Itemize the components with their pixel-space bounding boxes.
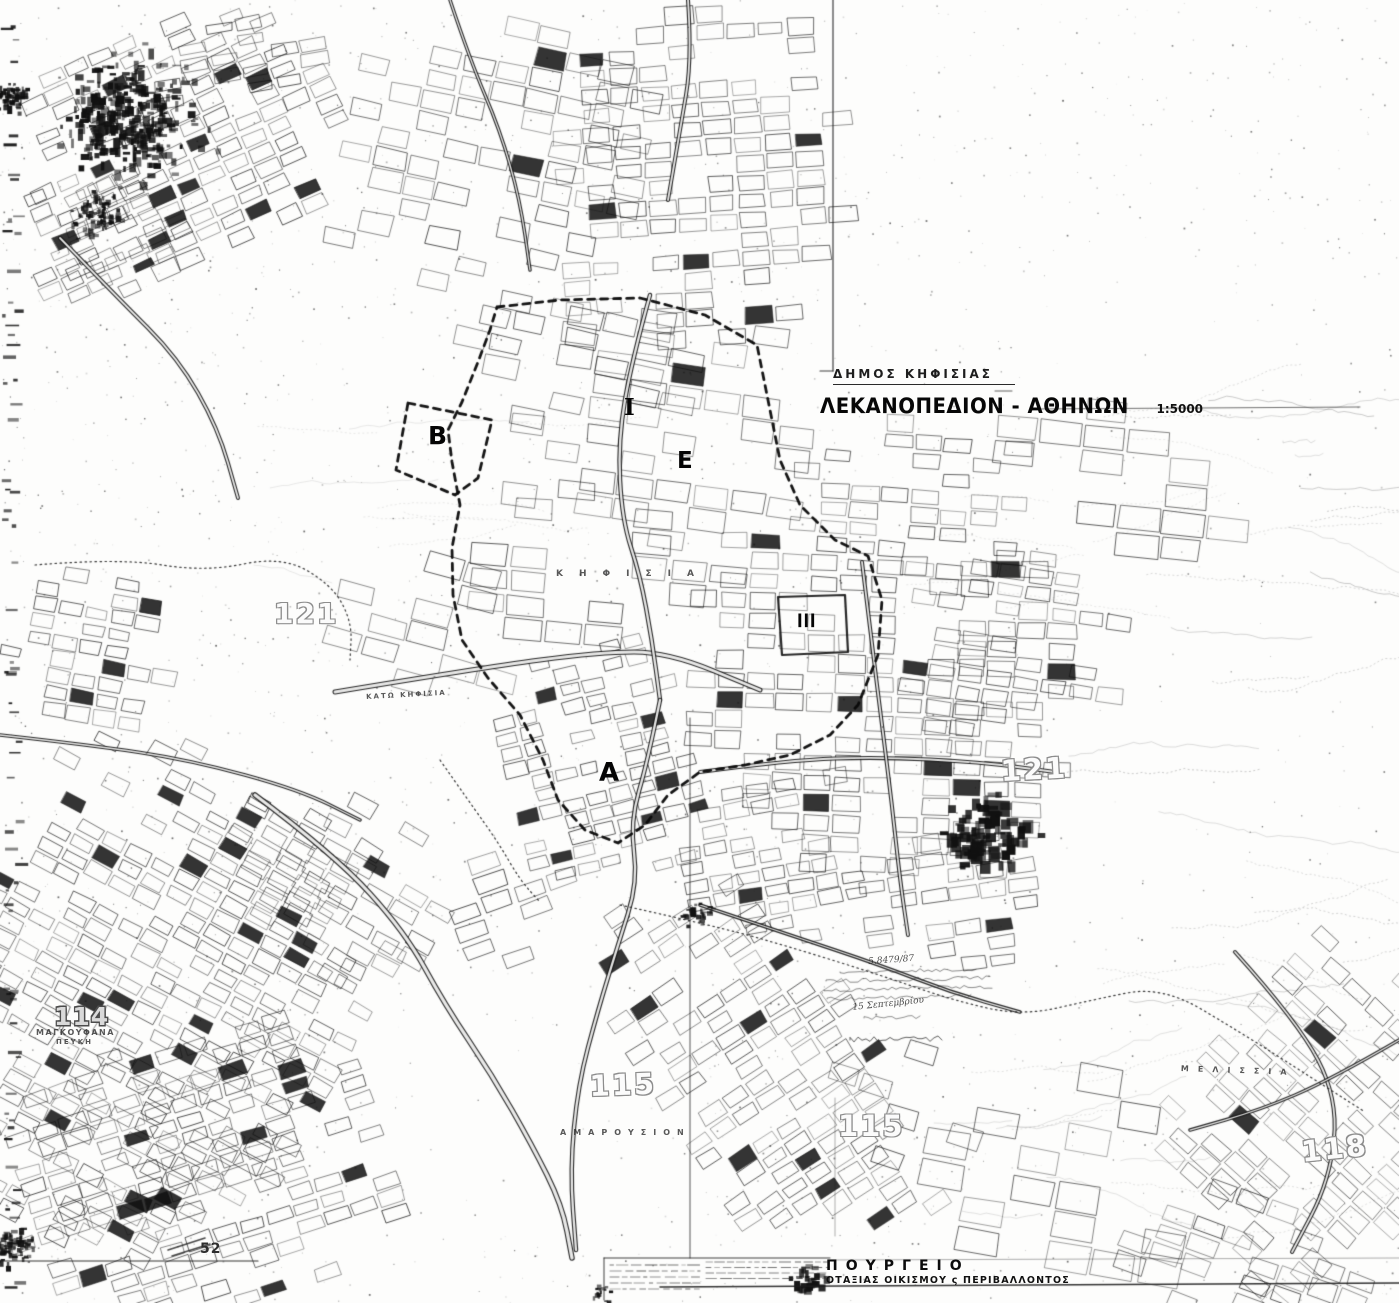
- sheet-number-118: 118: [1300, 1131, 1369, 1167]
- ministry-department-label: ΟΤΑΞΙΑΣ ΟΙΚΙΣΜΟΥ ς ΠΕΡΙΒΑΛΛΟΝΤΟΣ: [826, 1275, 1070, 1286]
- map-title-block: ΔΗΜΟΣ ΚΗΦΙΣΙΑΣ ΛΕΚΑΝΟΠΕΔΙΟΝ - ΑΘΗΝΩΝ 1:5…: [820, 363, 1380, 418]
- annotation-date: 15 Σεπτεμβρίου: [852, 996, 925, 1012]
- ministry-name-label: ΠΟΥΡΓΕΙΟ: [826, 1258, 1070, 1274]
- place-name-pefki: ΠΕΥΚΗ: [56, 1039, 93, 1046]
- map-title: ΛΕΚΑΝΟΠΕΔΙΟΝ - ΑΘΗΝΩΝ: [820, 394, 1129, 418]
- map-labels-layer: 12112111511511811452ΒΕΑΙΙΙΙΚΗΦΙΣΙΑΚΑΤΩ Κ…: [0, 0, 1399, 1303]
- place-name-magkoufana: ΜΑΓΚΟΥΦΑΝΑ: [36, 1029, 115, 1037]
- zone-letter-e: Ε: [677, 450, 693, 473]
- zone-letter-b: Β: [428, 423, 447, 448]
- sheet-number-52: 52: [200, 1242, 221, 1256]
- place-name-kifisia: ΚΗΦΙΣΙΑ: [556, 570, 710, 579]
- sheet-number-115-left: 115: [589, 1070, 657, 1101]
- sheet-number-114: 114: [54, 1004, 109, 1029]
- zone-numeral-i: Ι: [624, 396, 635, 419]
- scanned-map-page: 12112111511511811452ΒΕΑΙΙΙΙΚΗΦΙΣΙΑΚΑΤΩ Κ…: [0, 0, 1399, 1303]
- sheet-number-115-right: 115: [838, 1112, 905, 1141]
- zone-numeral-iii: ΙΙΙ: [797, 612, 816, 631]
- place-name-amarousion: ΑΜΑΡΟΥΣΙΟΝ: [560, 1129, 691, 1137]
- zone-letter-a: Α: [599, 760, 619, 786]
- sheet-number-121-left: 121: [274, 600, 338, 628]
- map-scale-label: 1:5000: [1156, 402, 1203, 416]
- annotation-reference: 5.8479/87: [868, 955, 915, 967]
- place-name-kato-kifisia: ΚΑΤΩ ΚΗΦΙΣΙΑ: [366, 690, 447, 701]
- ministry-footer: ΠΟΥΡΓΕΙΟ ΟΤΑΞΙΑΣ ΟΙΚΙΣΜΟΥ ς ΠΕΡΙΒΑΛΛΟΝΤΟ…: [826, 1258, 1070, 1286]
- place-name-melissia: ΜΕΛΙΣΣΙΑ: [1181, 1065, 1296, 1077]
- municipality-label: ΔΗΜΟΣ ΚΗΦΙΣΙΑΣ: [833, 367, 1015, 385]
- sheet-number-121-right: 121: [1000, 754, 1068, 786]
